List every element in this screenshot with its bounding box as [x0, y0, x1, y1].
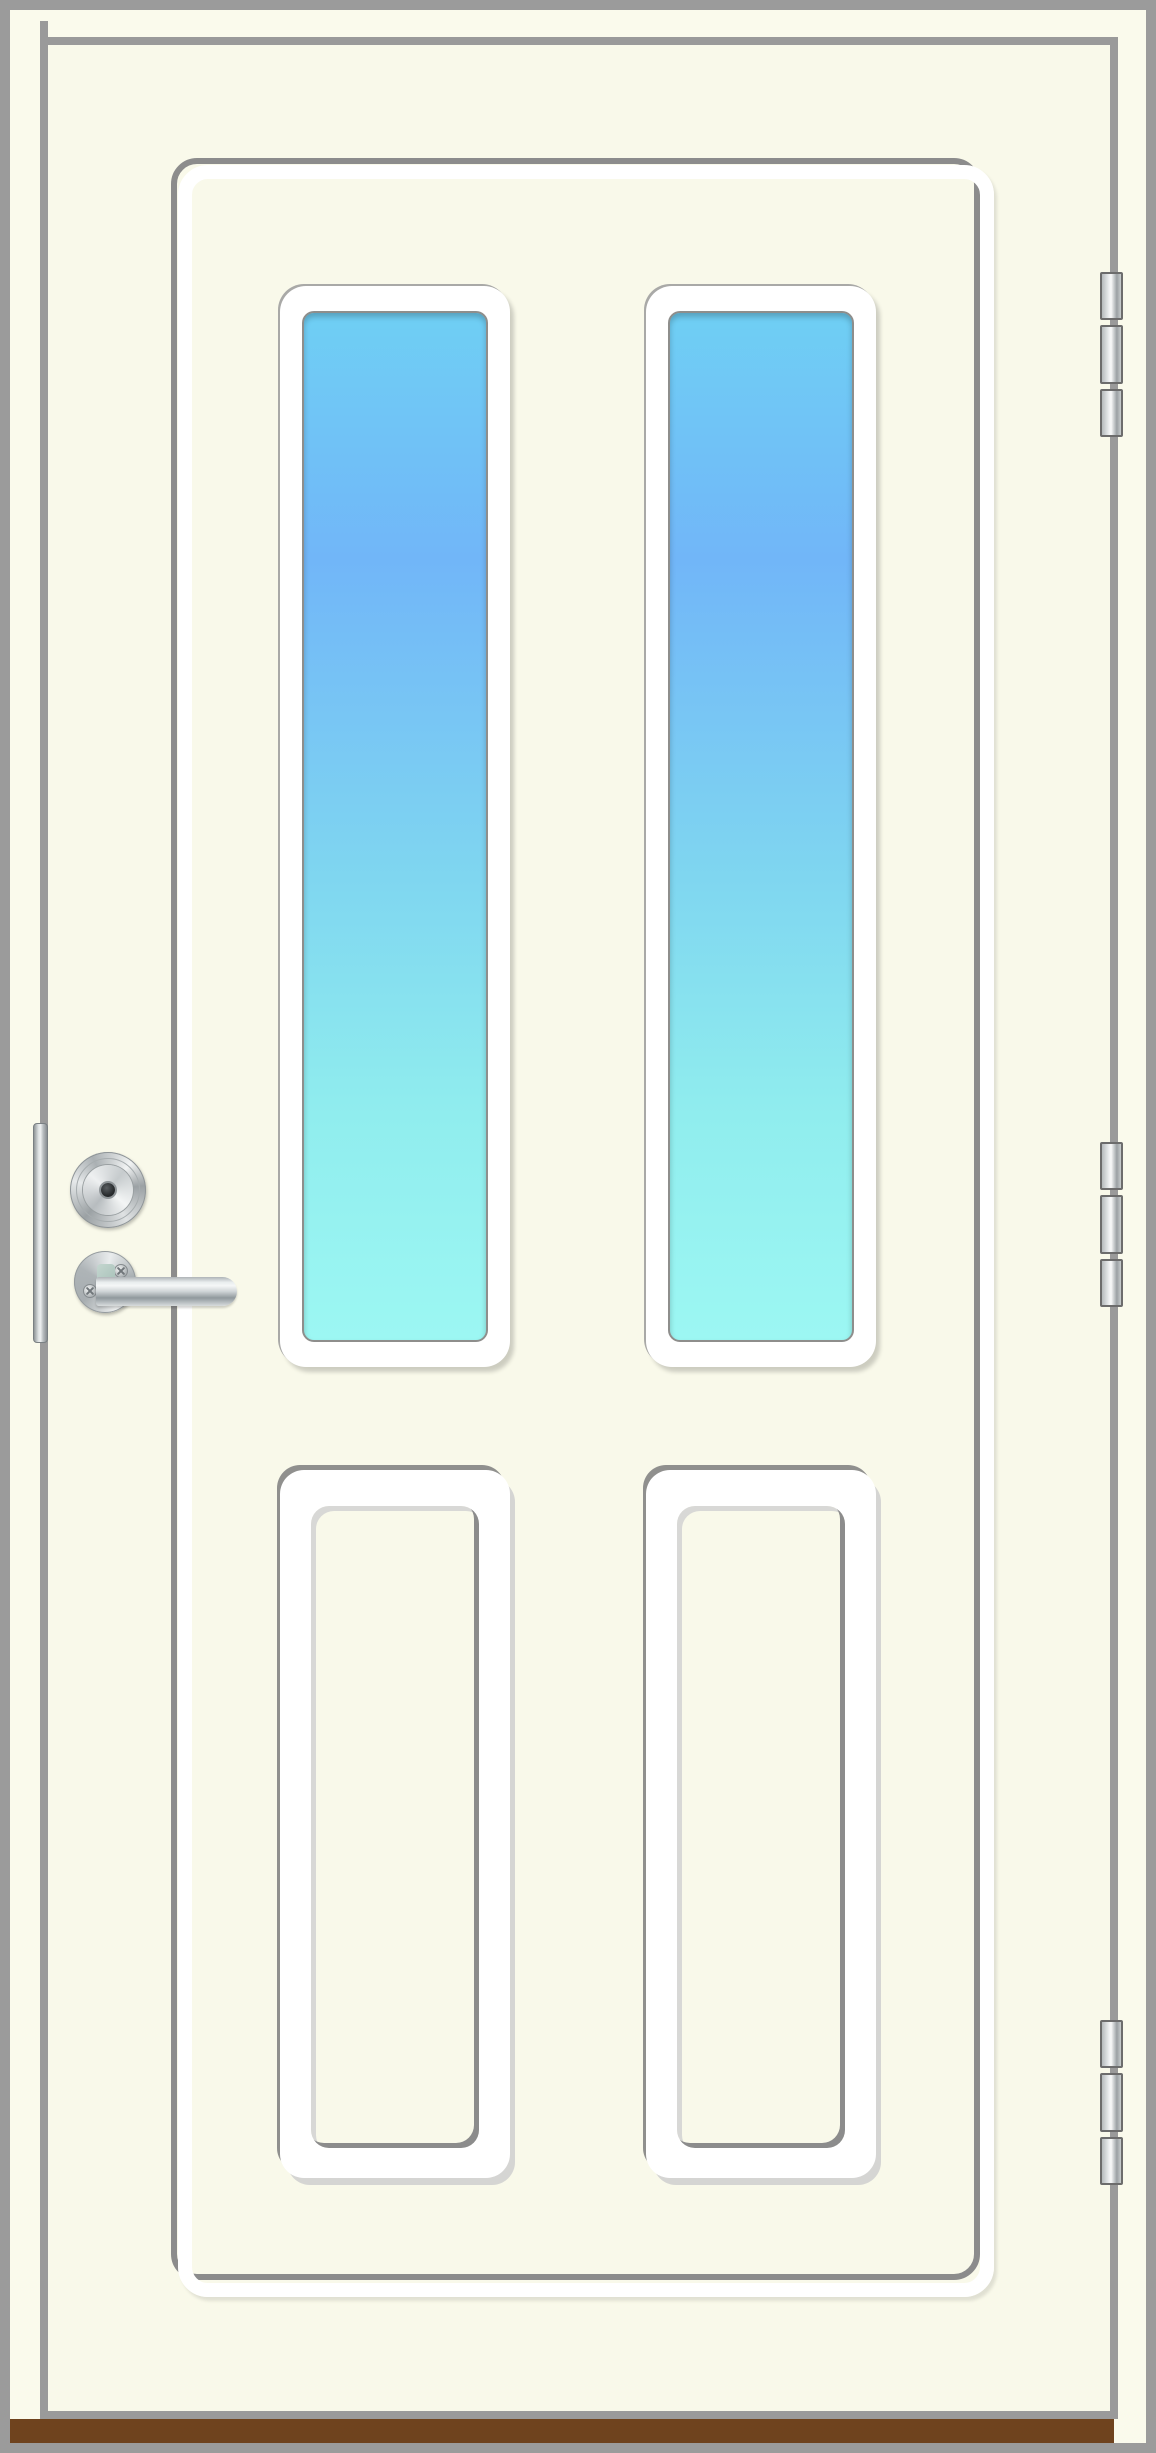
hinge-knuckle	[1100, 1259, 1123, 1307]
keyhole	[101, 1183, 115, 1197]
hinge-knuckle	[1100, 2137, 1123, 2185]
hinge-knuckle	[1100, 389, 1123, 437]
door-handle-lever	[96, 1277, 237, 1306]
hinge-top	[1100, 272, 1123, 437]
hinge-knuckle	[1100, 272, 1123, 320]
panel-bottom-left-recess	[311, 1506, 479, 2148]
panel-bottom-left	[280, 1470, 510, 2178]
panel-bottom-right	[646, 1470, 876, 2178]
rosette-screw-icon	[83, 1284, 97, 1298]
hinge-knuckle	[1100, 1142, 1123, 1190]
hinge-knuckle	[1100, 1195, 1123, 1254]
door-leaf	[40, 37, 1118, 2419]
window-right-glass	[668, 311, 854, 1342]
window-left-glass	[302, 311, 488, 1342]
window-left-frame	[280, 286, 510, 1367]
hinge-middle	[1100, 1142, 1123, 1307]
hinge-knuckle	[1100, 2020, 1123, 2068]
edge-strike-plate	[33, 1123, 48, 1343]
threshold-sill	[10, 2419, 1114, 2443]
rosette-screw-icon	[114, 1264, 128, 1278]
hinge-knuckle	[1100, 325, 1123, 384]
door-illustration	[0, 0, 1156, 2453]
lock-cylinder	[70, 1152, 146, 1228]
hinge-knuckle	[1100, 2073, 1123, 2132]
hinge-bottom	[1100, 2020, 1123, 2185]
panel-bottom-right-recess	[677, 1506, 845, 2148]
window-right-frame	[646, 286, 876, 1367]
